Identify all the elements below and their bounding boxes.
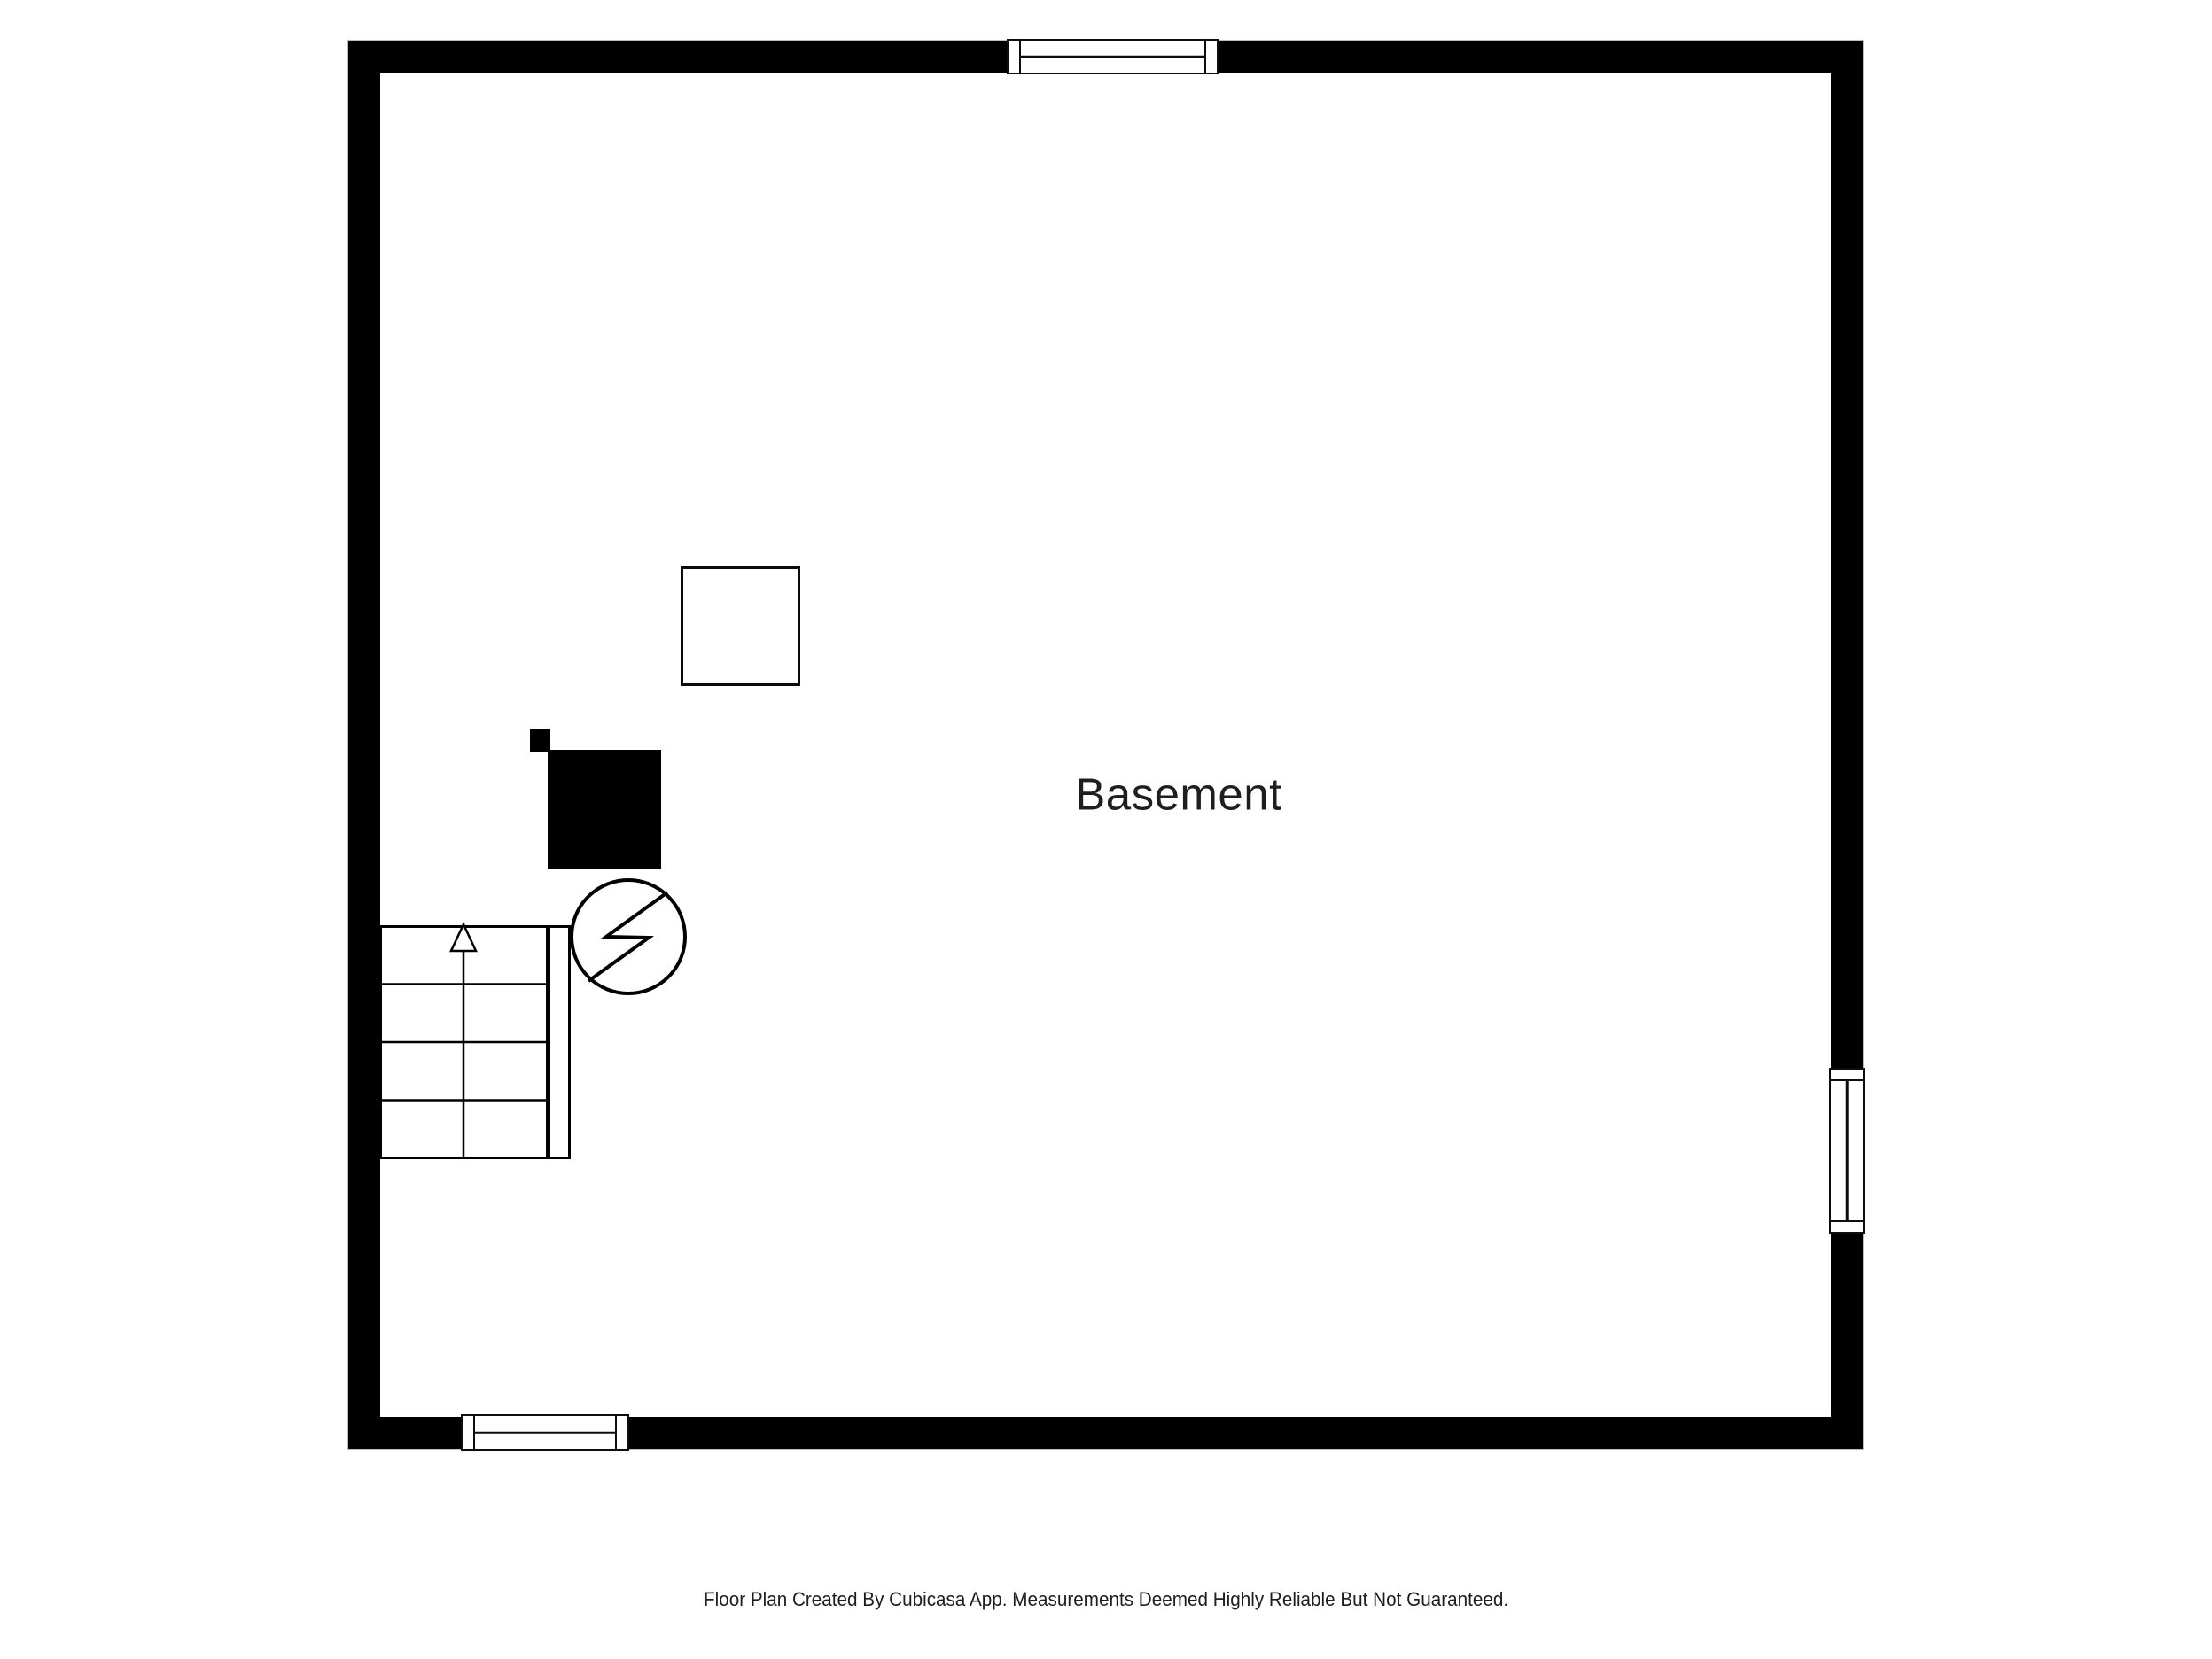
furnace-block-icon [548,750,661,869]
staircase-icon [381,927,548,1158]
floor-plan-symbols [0,0,2212,1659]
floor-plan-canvas: Basement Floor Plan Created By Cubicasa … [0,0,2212,1659]
electrical-symbol-icon [572,880,685,993]
disclaimer-text: Floor Plan Created By Cubicasa App. Meas… [704,1588,1508,1611]
utility-box-icon [681,566,800,686]
stair-railing-icon [549,927,570,1158]
footer: Floor Plan Created By Cubicasa App. Meas… [0,1588,2212,1611]
room-label: Basement [1075,768,1282,821]
flue-block-icon [530,729,550,752]
